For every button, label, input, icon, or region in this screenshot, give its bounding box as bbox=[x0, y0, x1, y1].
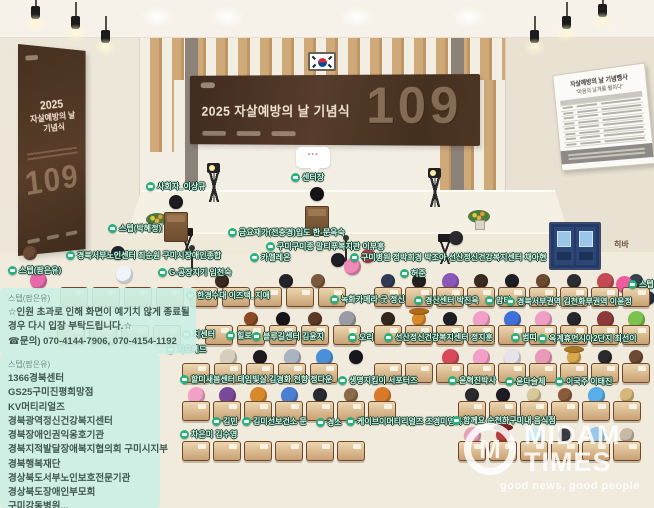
chat-bubble-icon bbox=[250, 253, 259, 262]
avatar[interactable] bbox=[620, 428, 634, 442]
desk bbox=[458, 441, 486, 461]
desk bbox=[337, 441, 365, 461]
attendee-name-label: 블루길센터 김윤지 bbox=[252, 331, 324, 342]
name-text: 경북서부노인센터 최순원 구미시장애인종합 bbox=[77, 250, 221, 261]
chat-bubble-icon bbox=[266, 242, 275, 251]
name-text: 케이브이머티리얼즈 조경미영복 bbox=[357, 416, 462, 427]
name-text: 구미병원 정박희경 박조아 선산정신건강복지센터 채아현 bbox=[361, 252, 547, 263]
attendee-name-label: 히바 bbox=[614, 239, 629, 250]
avatar[interactable] bbox=[23, 246, 37, 260]
name-text: 스텝 bbox=[639, 279, 654, 290]
name-text: 구미구미종 말티푸복지관 이부흥 bbox=[277, 241, 384, 252]
ceiling-light bbox=[340, 6, 374, 28]
wood-slats bbox=[150, 80, 174, 152]
chat-bubble-icon bbox=[350, 253, 359, 262]
organization-list: 스텝(팜은유) 1366경북센터GS25구미진평희망점KV머티리얼즈경북광역정신… bbox=[0, 354, 160, 508]
avatar[interactable] bbox=[313, 388, 327, 402]
name-text: 선산정신건강복지센터 정지훈 bbox=[395, 332, 493, 343]
attendee-name-label: 스텝 bbox=[628, 279, 654, 290]
banner-number-109: 109 bbox=[366, 76, 462, 136]
attendee-name-label: 김민 bbox=[212, 416, 238, 427]
ceiling-light bbox=[210, 6, 244, 28]
moderator-lectern bbox=[164, 212, 188, 242]
desk bbox=[489, 441, 517, 461]
attendee-name-label: 케이브이머티리얼즈 조경미영복 bbox=[346, 416, 462, 427]
desk bbox=[244, 441, 272, 461]
organization-item: 구미강동병원... bbox=[8, 500, 152, 508]
name-text: 경북서부권역 김천화부권역 이윤정 bbox=[517, 296, 632, 307]
organization-item: 경상북도서부노인보호전문기관 bbox=[8, 472, 152, 486]
chat-bubble-icon bbox=[252, 332, 261, 341]
desk bbox=[582, 441, 610, 461]
banner-sponsor-logos bbox=[202, 131, 295, 136]
avatar[interactable] bbox=[279, 274, 293, 288]
name-text: 옥계휴먼시아2단지 최선이 bbox=[549, 333, 637, 344]
name-text: 힐로 bbox=[237, 330, 252, 341]
banner-logo-mark bbox=[201, 82, 215, 88]
attendee-name-label: 범띠 bbox=[511, 332, 537, 343]
desk bbox=[306, 441, 334, 461]
poster-logo-mark bbox=[25, 55, 38, 61]
desk bbox=[622, 363, 650, 383]
desk bbox=[182, 441, 210, 461]
schedule-table bbox=[560, 91, 647, 148]
avatar[interactable] bbox=[311, 274, 325, 288]
exit-door[interactable] bbox=[549, 222, 601, 270]
chat-bubble-icon bbox=[485, 296, 494, 305]
chat-bubble-icon bbox=[158, 268, 167, 277]
name-text: 오리 bbox=[359, 332, 374, 343]
avatar[interactable] bbox=[412, 312, 426, 326]
chat-bubble-icon bbox=[212, 417, 221, 426]
pendant-lamp bbox=[71, 16, 80, 29]
name-text: 윤혁진박사 bbox=[459, 375, 496, 386]
speech-bubble: ··· bbox=[296, 147, 330, 168]
name-text: 김미선보건소 문 bbox=[253, 416, 307, 427]
name-text: 녹화카메라-굿 정신 bbox=[341, 294, 405, 305]
attendee-name-label: 녹화카메라-굿 정신 bbox=[330, 294, 405, 305]
name-text: 김민 bbox=[223, 416, 238, 427]
chat-bubble-icon bbox=[180, 430, 189, 439]
poster-title: 2025 자살예방의 날 기념식 bbox=[16, 95, 87, 138]
chat-bubble-icon bbox=[505, 377, 514, 386]
attendee-name-label: 옥계휴먼시아2단지 최선이 bbox=[538, 333, 637, 344]
attendee-name-label: 경북서부권역 김천화부권역 이윤정 bbox=[506, 296, 632, 307]
attendee-name-label: 허준 bbox=[400, 268, 426, 279]
announcement-sender: 스텝(팜은유) bbox=[8, 293, 188, 304]
announcement-text: ☆인원 초과로 인해 화면이 예기치 않게 종료될경우 다시 입장 부탁드립니다… bbox=[8, 306, 188, 349]
avatar[interactable] bbox=[558, 388, 572, 402]
chat-bubble-icon bbox=[448, 376, 457, 385]
virtual-event-hall[interactable]: 2025 자살예방의 날 기념식 109 2025 자살예방의 날 기념식 10… bbox=[0, 0, 654, 508]
attendee-name-label: 김미선보건소 문 bbox=[242, 416, 307, 427]
chat-bubble-icon bbox=[226, 331, 235, 340]
schedule-board: 자살예방의 날 기념행사 "마음의 날개를 펼치다" bbox=[552, 62, 654, 171]
avatar[interactable] bbox=[443, 312, 457, 326]
organization-item: 경북장애인권익옹호기관 bbox=[8, 429, 152, 443]
attendee-name-label: 선산정신건강복지센터 정지훈 bbox=[384, 332, 493, 343]
stage-banner: 2025 자살예방의 날 기념식 109 bbox=[190, 74, 480, 146]
desk bbox=[520, 441, 548, 461]
name-text: 차은미 김수영 bbox=[191, 429, 237, 440]
attendee-name-label: 스텝(팜은유) bbox=[8, 265, 61, 276]
attendee-name-label: 함께요 순천하구미내 음식점 bbox=[452, 415, 556, 426]
attendee-name-label: 경북서부노인센터 최순원 구미시장애인종합 bbox=[66, 250, 221, 261]
avatar[interactable] bbox=[620, 388, 634, 402]
attendee-name-label: 금요재가(전충경)입도 한-문옥숙 bbox=[228, 227, 345, 238]
desk bbox=[582, 401, 610, 421]
name-text: 사회자_이상규 bbox=[157, 181, 206, 192]
name-text: 경산센터 박진옥 bbox=[425, 295, 479, 306]
orglist-sender: 스텝(팜은유) bbox=[8, 359, 152, 370]
organization-item: GS25구미진평희망점 bbox=[8, 386, 152, 400]
organization-item: 경북지적발달장애복지협의회 구미시지부 bbox=[8, 443, 152, 457]
avatar[interactable] bbox=[253, 350, 267, 364]
name-text: 경소 bbox=[327, 417, 342, 428]
chat-bubble-icon bbox=[384, 333, 393, 342]
chat-bubble-icon bbox=[228, 228, 237, 237]
organization-item: KV머티리얼즈 bbox=[8, 401, 152, 415]
ceiling-light bbox=[140, 6, 174, 28]
avatar[interactable] bbox=[344, 388, 358, 402]
chat-bubble-icon bbox=[330, 295, 339, 304]
avatar[interactable] bbox=[310, 187, 324, 201]
name-text: 스텝(박혜정) bbox=[119, 223, 161, 234]
attendee-name-label: 구미병원 정박희경 박조아 선산정신건강복지센터 채아현 bbox=[350, 252, 547, 263]
poster-number-109: 109 bbox=[16, 157, 87, 206]
organization-item: 경상북도장애인부모회 bbox=[8, 486, 152, 500]
chat-bubble-icon bbox=[66, 251, 75, 260]
chat-bubble-icon bbox=[346, 417, 355, 426]
organization-item: 경북광역정신건강복지센터 bbox=[8, 415, 152, 429]
avatar[interactable] bbox=[629, 350, 643, 364]
event-poster: 2025 자살예방의 날 기념식 109 bbox=[18, 44, 86, 256]
avatar[interactable] bbox=[381, 274, 395, 288]
attendee-name-label: 윤혁진박사 bbox=[448, 375, 496, 386]
avatar[interactable] bbox=[308, 312, 322, 326]
attendee-name-label: 할미새봄센터 태임빛살 김경화 천향 정다운 bbox=[180, 374, 332, 385]
chat-bubble-icon bbox=[242, 417, 251, 426]
desk bbox=[275, 441, 303, 461]
avatar[interactable] bbox=[558, 428, 572, 442]
chat-bubble-icon bbox=[348, 333, 357, 342]
announcement-line: ☎문의) 070-4144-7906, 070-4154-1192 bbox=[8, 335, 188, 349]
announcement-line: ☆인원 초과로 인해 화면이 예기치 않게 종료될 bbox=[8, 306, 188, 320]
avatar-hat bbox=[564, 346, 584, 353]
organization-item: 1366경북센터 bbox=[8, 372, 152, 386]
chat-bubble-icon bbox=[628, 280, 637, 289]
chat-bubble-icon bbox=[506, 297, 515, 306]
avatar-hat bbox=[409, 308, 429, 315]
chat-bubble-icon bbox=[338, 376, 347, 385]
pendant-lamp bbox=[101, 30, 110, 43]
avatar[interactable] bbox=[496, 388, 510, 402]
name-text: 센터장 bbox=[302, 172, 324, 183]
chat-bubble-icon bbox=[414, 296, 423, 305]
announcement-line: 경우 다시 입장 부탁드립니다.☆ bbox=[8, 320, 188, 334]
name-text: 카멜레온 bbox=[261, 252, 290, 263]
name-text: 범띠 bbox=[522, 332, 537, 343]
attendee-name-label: 한경수대 이즈택_지애 bbox=[186, 290, 270, 301]
avatar[interactable] bbox=[331, 253, 345, 267]
pendant-lamp bbox=[530, 30, 539, 43]
desk bbox=[613, 441, 641, 461]
chat-bubble-icon bbox=[146, 182, 155, 191]
avatar[interactable] bbox=[474, 274, 488, 288]
banner-title: 2025 자살예방의 날 기념식 bbox=[202, 100, 351, 120]
avatar[interactable] bbox=[567, 274, 581, 288]
avatar[interactable] bbox=[449, 231, 463, 245]
ceiling-light bbox=[452, 6, 486, 28]
name-text: 금요재가(전충경)입도 한-문옥숙 bbox=[239, 227, 345, 238]
chat-bubble-icon bbox=[108, 224, 117, 233]
name-text: 윤다슬체 bbox=[516, 376, 545, 387]
attendee-name-label: 카멜레온 bbox=[250, 252, 290, 263]
avatar[interactable] bbox=[116, 266, 133, 283]
name-text: 스텝(팜은유) bbox=[19, 265, 61, 276]
orglist-items: 1366경북센터GS25구미진평희망점KV머티리얼즈경북광역정신건강복지센터경북… bbox=[8, 372, 152, 508]
chat-bubble-icon bbox=[511, 333, 520, 342]
name-text: 한경수대 이즈택_지애 bbox=[197, 290, 270, 301]
avatar[interactable] bbox=[567, 312, 581, 326]
name-text: 지센터 bbox=[193, 329, 215, 340]
attendee-name-label: 윤다슬체 bbox=[505, 376, 545, 387]
attendee-name-label: 오리 bbox=[348, 332, 374, 343]
stage-platform-upper bbox=[128, 190, 568, 232]
chat-bubble-icon bbox=[452, 416, 461, 425]
pendant-lamp bbox=[562, 16, 571, 29]
name-text: 함께요 순천하구미내 음식점 bbox=[463, 415, 556, 426]
poster-sponsor-logos bbox=[27, 230, 77, 244]
attendee-name-label: 차은미 김수영 bbox=[180, 429, 237, 440]
avatar[interactable] bbox=[349, 350, 363, 364]
name-text: 허준 bbox=[411, 268, 426, 279]
flower-arrangement bbox=[466, 210, 492, 230]
avatar[interactable] bbox=[276, 312, 290, 326]
name-text: G-공장지기 임천숙 bbox=[169, 267, 232, 278]
attendee-name-label: 센터장 bbox=[291, 172, 324, 183]
avatar[interactable] bbox=[244, 312, 258, 326]
attendee-name-label: 힐로 bbox=[226, 330, 252, 341]
chat-bubble-icon bbox=[180, 375, 189, 384]
chat-bubble-icon bbox=[291, 173, 300, 182]
attendee-name-label: 구미구미종 말티푸복지관 이부흥 bbox=[266, 241, 384, 252]
avatar[interactable] bbox=[598, 350, 612, 364]
desk bbox=[551, 441, 579, 461]
avatar[interactable] bbox=[381, 312, 395, 326]
desk bbox=[613, 401, 641, 421]
avatar[interactable] bbox=[567, 350, 581, 364]
chat-bubble-icon bbox=[555, 377, 564, 386]
chat-bubble-icon bbox=[8, 266, 17, 275]
attendee-name-label: G-공장지기 임천숙 bbox=[158, 267, 232, 278]
avatar[interactable] bbox=[505, 274, 519, 288]
attendee-name-label: 사회자_이상규 bbox=[146, 181, 206, 192]
avatar[interactable] bbox=[536, 274, 550, 288]
attendee-name-label: 경산센터 박진옥 bbox=[414, 295, 479, 306]
name-text: 할미새봄센터 태임빛살 김경화 천향 정다운 bbox=[191, 374, 332, 385]
name-text: 생명지킴이 서포터즈 bbox=[349, 375, 417, 386]
desk bbox=[213, 441, 241, 461]
desk bbox=[182, 401, 210, 421]
name-text: 히바 bbox=[614, 239, 629, 250]
desk bbox=[286, 287, 314, 307]
avatar[interactable] bbox=[169, 195, 183, 209]
attendee-name-label: 스텝(박혜정) bbox=[108, 223, 161, 234]
korean-flag-icon bbox=[308, 52, 336, 71]
attendee-name-label: 경소 bbox=[316, 417, 342, 428]
pendant-lamp bbox=[598, 4, 607, 17]
avatar[interactable] bbox=[465, 388, 479, 402]
avatar[interactable] bbox=[496, 428, 510, 442]
attendee-name-label: 이국주 이태진 bbox=[555, 376, 612, 387]
pendant-lamp bbox=[31, 6, 40, 19]
organization-item: 경북행복재단 bbox=[8, 458, 152, 472]
name-text: 블루길센터 김윤지 bbox=[263, 331, 324, 342]
chat-bubble-icon bbox=[400, 269, 409, 278]
chat-bubble-icon bbox=[316, 418, 325, 427]
avatar[interactable] bbox=[527, 388, 541, 402]
name-text: 이국주 이태진 bbox=[566, 376, 612, 387]
chat-bubble-icon bbox=[538, 334, 547, 343]
staff-announcement: 스텝(팜은유) ☆인원 초과로 인해 화면이 예기치 않게 종료될경우 다시 입… bbox=[0, 288, 196, 354]
spotlight-tripod bbox=[203, 163, 225, 203]
attendee-name-label: 생명지킴이 서포터즈 bbox=[338, 375, 417, 386]
spotlight-tripod bbox=[424, 168, 446, 208]
